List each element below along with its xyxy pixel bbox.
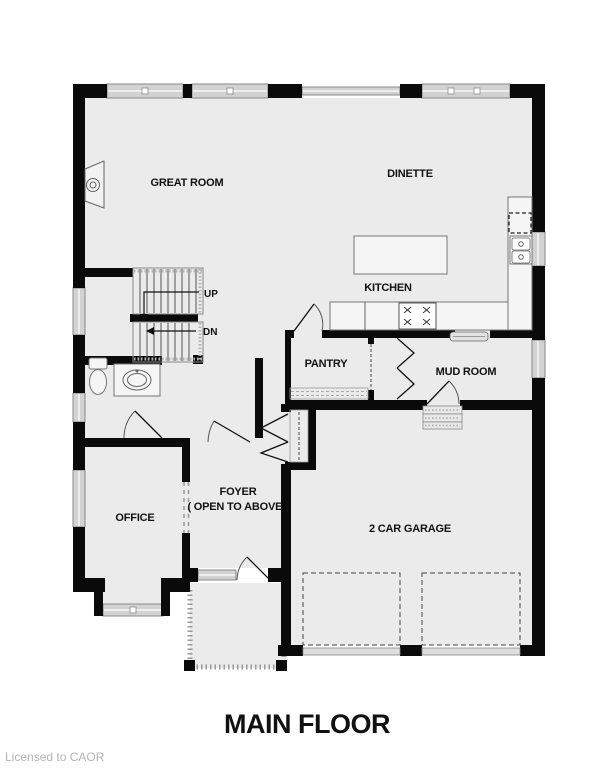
garage-steps bbox=[423, 406, 462, 429]
vanity-sink-icon bbox=[114, 364, 160, 396]
office-label: OFFICE bbox=[115, 512, 154, 524]
kitchen-label: KITCHEN bbox=[364, 282, 412, 294]
kitchen-sink-icon bbox=[510, 236, 532, 264]
dn-label: DN bbox=[203, 327, 217, 338]
toilet-icon bbox=[89, 358, 107, 395]
up-label: UP bbox=[204, 289, 218, 300]
porch-post-left bbox=[184, 660, 195, 671]
plan-title: MAIN FLOOR bbox=[224, 709, 390, 739]
pocket-door bbox=[450, 332, 488, 341]
dinette-label: DINETTE bbox=[387, 168, 433, 180]
kitchen-island bbox=[354, 236, 447, 274]
floor-plan-page: GREAT ROOM DINETTE KITCHEN PANTRY MUD RO… bbox=[0, 0, 614, 768]
great-room-label: GREAT ROOM bbox=[151, 177, 224, 189]
foyer-label: FOYER bbox=[220, 486, 257, 498]
porch-floor bbox=[190, 583, 286, 668]
stove-icon bbox=[399, 303, 436, 329]
license-watermark: Licensed to CAOR bbox=[5, 750, 105, 764]
garage-label: 2 CAR GARAGE bbox=[369, 523, 451, 535]
porch-post-right bbox=[276, 660, 287, 671]
floor-plan-drawing: GREAT ROOM DINETTE KITCHEN PANTRY MUD RO… bbox=[0, 0, 614, 768]
fireplace-icon bbox=[85, 161, 104, 208]
foyer-sub-label: ( OPEN TO ABOVE ) bbox=[187, 501, 289, 513]
pantry-label: PANTRY bbox=[305, 358, 349, 370]
mud-room-label: MUD ROOM bbox=[436, 366, 497, 378]
